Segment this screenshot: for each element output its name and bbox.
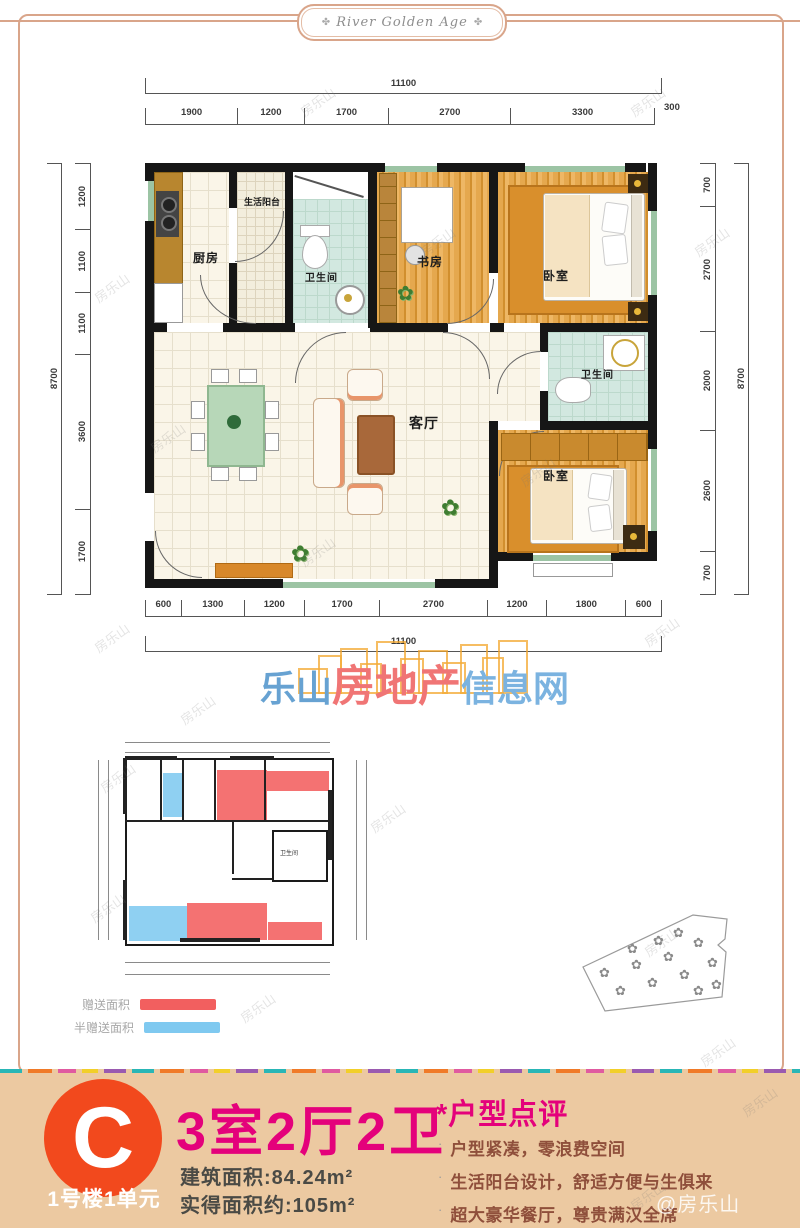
dimension-segment: 1700 bbox=[75, 510, 90, 594]
dimension-value: 2600 bbox=[703, 480, 713, 501]
dimension-value: 1200 bbox=[506, 600, 527, 610]
headboard bbox=[631, 195, 642, 297]
lamp-icon bbox=[634, 180, 641, 187]
plant-icon: ✿ bbox=[441, 495, 459, 521]
decor: ✿ bbox=[711, 978, 722, 993]
tv-cabinet bbox=[215, 563, 293, 578]
chair bbox=[239, 467, 257, 481]
washing-machine bbox=[611, 339, 639, 367]
bullet-icon: · bbox=[438, 1169, 442, 1184]
dimension-value: 600 bbox=[636, 600, 652, 610]
bullet-icon: · bbox=[438, 1202, 442, 1217]
wall bbox=[232, 822, 234, 874]
dim-hairline bbox=[125, 974, 330, 975]
dim-hairline bbox=[125, 752, 330, 753]
decor: 8700 bbox=[736, 368, 747, 389]
dimension-segment: 700 bbox=[700, 164, 715, 207]
ornament-icon: ✤ bbox=[474, 17, 482, 28]
dimension-value: 1900 bbox=[181, 108, 202, 118]
dimension-segment: 1200 bbox=[75, 164, 90, 230]
dimension-segment: 1200 bbox=[238, 108, 304, 124]
wall bbox=[368, 163, 377, 328]
legend-swatch bbox=[144, 1022, 220, 1033]
wall bbox=[223, 323, 295, 332]
site-logo-text: 乐山房地产信息网 bbox=[260, 652, 540, 714]
coffee-table bbox=[357, 415, 395, 475]
chair bbox=[265, 401, 279, 419]
decor bbox=[583, 915, 727, 1011]
wall bbox=[232, 878, 272, 880]
dimension-value: 1100 bbox=[78, 251, 88, 272]
dimension-segment: 1900 bbox=[146, 108, 238, 124]
dim-top-offset: 300 bbox=[664, 102, 680, 113]
legend-swatch bbox=[140, 999, 216, 1010]
wall bbox=[180, 938, 260, 942]
room-label: 卧室 bbox=[543, 267, 569, 284]
dim-hairline bbox=[125, 742, 330, 743]
decor: ✿ bbox=[631, 958, 642, 973]
fridge bbox=[154, 283, 183, 323]
decor: ✿ bbox=[693, 936, 704, 951]
sofa bbox=[313, 398, 345, 488]
dimension-value: 1700 bbox=[331, 600, 352, 610]
centerpiece-icon bbox=[227, 415, 241, 429]
wall bbox=[489, 421, 498, 552]
window bbox=[648, 449, 657, 531]
unit-badge-letter: C bbox=[72, 1095, 134, 1181]
window bbox=[533, 552, 611, 561]
dimension-value: 1800 bbox=[576, 600, 597, 610]
dimension-value: 1200 bbox=[78, 186, 88, 207]
window bbox=[648, 211, 657, 295]
dimension-value: 600 bbox=[155, 600, 171, 610]
site-sketch-svg: ✿✿✿ ✿✿✿ ✿✿✿ ✿✿✿ ✿ bbox=[575, 905, 745, 1025]
dim-top-total: 11100 bbox=[145, 78, 662, 94]
dimension-value: 3300 bbox=[572, 108, 593, 118]
burner-icon bbox=[161, 215, 177, 231]
toilet bbox=[302, 235, 328, 269]
pillow bbox=[587, 473, 612, 502]
chair bbox=[265, 433, 279, 451]
bookshelf bbox=[379, 173, 397, 323]
dimension-segment: 2700 bbox=[700, 207, 715, 332]
wall bbox=[125, 756, 177, 760]
dimension-segment: 1200 bbox=[245, 600, 305, 616]
window bbox=[525, 163, 625, 172]
dimension-segment: 1700 bbox=[305, 600, 381, 616]
dimension-segment: 1100 bbox=[75, 293, 90, 355]
dimension-value: 1100 bbox=[78, 313, 88, 334]
wall bbox=[543, 421, 657, 430]
legend-label: 赠送面积 bbox=[82, 996, 130, 1013]
wall bbox=[125, 820, 330, 822]
decor: ✿ bbox=[707, 956, 718, 971]
chair bbox=[191, 433, 205, 451]
dim-right-total: 8700 bbox=[734, 163, 749, 595]
dimension-value: 1200 bbox=[264, 600, 285, 610]
decor: ✿ bbox=[627, 942, 638, 957]
dimension-segment: 2000 bbox=[700, 332, 715, 430]
decor: ✿ bbox=[679, 968, 690, 983]
pillow bbox=[587, 504, 612, 532]
dimension-value: 2700 bbox=[439, 108, 460, 118]
wall bbox=[214, 760, 216, 820]
actual-area: 实得面积约:105m² bbox=[180, 1189, 355, 1218]
flyer-page: ✤ River Golden Age ✤ 11100 1900120017002… bbox=[0, 0, 800, 1228]
logo-text-mid: 房地产 bbox=[332, 663, 461, 711]
dim-left-segments: 12001100110036001700 bbox=[75, 163, 91, 595]
decor: ✿ bbox=[693, 984, 704, 999]
wall bbox=[489, 561, 498, 588]
washer-drum-icon bbox=[344, 294, 352, 302]
bullet-icon: · bbox=[438, 1136, 442, 1151]
wall bbox=[285, 163, 293, 328]
ornament-icon: ✤ bbox=[322, 17, 330, 28]
building-label: 1号楼1单元 bbox=[28, 1183, 180, 1213]
wall bbox=[229, 163, 237, 208]
decor: ✿ bbox=[663, 950, 674, 965]
wall bbox=[160, 760, 162, 820]
wall bbox=[490, 323, 504, 332]
room-label: 生活阳台 bbox=[239, 195, 285, 208]
dimension-value: 2700 bbox=[703, 259, 713, 280]
bay-window bbox=[533, 563, 613, 577]
dimension-segment: 600 bbox=[146, 600, 182, 616]
dimension-value: 2700 bbox=[423, 600, 444, 610]
armchair bbox=[347, 483, 383, 515]
dimension-value: 1200 bbox=[260, 108, 281, 118]
dim-hairline bbox=[356, 760, 357, 940]
dimension-segment: 2600 bbox=[700, 431, 715, 552]
site-sketch: ✿✿✿ ✿✿✿ ✿✿✿ ✿✿✿ ✿ bbox=[575, 905, 745, 1030]
dimension-segment: 2700 bbox=[380, 600, 487, 616]
plant-icon: ✿ bbox=[397, 281, 414, 306]
dim-hairline bbox=[125, 962, 330, 963]
legend-label: 半赠送面积 bbox=[74, 1019, 134, 1036]
dimension-segment: 700 bbox=[700, 552, 715, 594]
legend-half-gift: 半赠送面积 bbox=[74, 1019, 220, 1036]
wall bbox=[328, 790, 332, 860]
window bbox=[385, 163, 437, 172]
decor: ✿ bbox=[615, 984, 626, 999]
decor: ✿ bbox=[647, 976, 658, 991]
lamp-icon bbox=[630, 533, 637, 540]
dim-hairline bbox=[366, 760, 367, 940]
site-logo: 乐山房地产信息网 bbox=[260, 636, 540, 714]
dim-top-segments: 19001200170027003300 bbox=[145, 108, 655, 125]
wall bbox=[123, 880, 127, 940]
dimension-value: 700 bbox=[703, 565, 713, 581]
wall bbox=[264, 760, 266, 820]
info-band: C 1号楼1单元 3室2厅2卫 建筑面积:84.24m² 实得面积约:105m²… bbox=[0, 1073, 800, 1228]
room-label: 厨房 bbox=[193, 249, 219, 266]
entry-door-leaf bbox=[294, 175, 363, 198]
pillow bbox=[601, 201, 629, 234]
review-point: ·户型紧凑，零浪费空间 bbox=[438, 1135, 778, 1160]
decor: ✿ bbox=[599, 966, 610, 981]
window bbox=[145, 181, 154, 221]
wardrobe bbox=[501, 433, 648, 461]
dim-bottom-segments: 600130012001700270012001800600 bbox=[145, 600, 662, 617]
chair bbox=[211, 467, 229, 481]
burner-icon bbox=[161, 197, 177, 213]
dimension-value: 2000 bbox=[703, 370, 713, 391]
dimension-value: 3600 bbox=[78, 421, 88, 442]
chair bbox=[191, 401, 205, 419]
dimension-value: 1700 bbox=[336, 108, 357, 118]
wall bbox=[145, 323, 167, 332]
credit-watermark: @房乐山 bbox=[656, 1188, 740, 1217]
dimension-segment: 1100 bbox=[75, 230, 90, 292]
chair bbox=[239, 369, 257, 383]
room-label: 客厅 bbox=[409, 413, 439, 433]
brand-ribbon: ✤ River Golden Age ✤ bbox=[297, 4, 507, 41]
legend-gift: 赠送面积 bbox=[82, 996, 216, 1013]
wall bbox=[540, 323, 657, 332]
decor: 8700 bbox=[49, 368, 60, 389]
review-point-text: 户型紧凑，零浪费空间 bbox=[450, 1135, 625, 1160]
review-title: *户型点评 bbox=[436, 1091, 568, 1133]
wall bbox=[370, 323, 448, 332]
decor: 11100 bbox=[391, 78, 416, 89]
room-label: 卫生间 bbox=[581, 366, 614, 381]
unit-badge: C bbox=[44, 1079, 162, 1197]
dimension-value: 700 bbox=[703, 177, 713, 193]
logo-text-left: 乐山 bbox=[260, 668, 332, 709]
brand-name: River Golden Age bbox=[336, 15, 468, 30]
dimension-segment: 3600 bbox=[75, 355, 90, 510]
dimension-segment: 1800 bbox=[547, 600, 626, 616]
layout-title: 3室2厅2卫 bbox=[176, 1087, 446, 1166]
dimension-value: 1700 bbox=[78, 541, 88, 562]
wall bbox=[230, 756, 274, 760]
built-area: 建筑面积:84.24m² bbox=[180, 1161, 353, 1190]
pillow bbox=[601, 234, 628, 266]
wall bbox=[489, 163, 498, 273]
room-label: 卫生间 bbox=[305, 269, 338, 284]
room-label: 卫生间 bbox=[280, 848, 298, 857]
logo-text-right: 信息网 bbox=[461, 668, 569, 709]
dimension-segment: 1200 bbox=[488, 600, 548, 616]
dimension-segment: 600 bbox=[626, 600, 661, 616]
dimension-segment: 2700 bbox=[389, 108, 511, 124]
floor-plan: ✿ bbox=[145, 163, 660, 593]
lamp-icon bbox=[634, 308, 641, 315]
wall bbox=[540, 332, 548, 352]
dimension-segment: 1300 bbox=[182, 600, 245, 616]
dim-left-total: 8700 bbox=[47, 163, 62, 595]
armchair bbox=[347, 369, 383, 401]
dimension-value: 1300 bbox=[202, 600, 223, 610]
wall bbox=[182, 760, 184, 820]
chair bbox=[211, 369, 229, 383]
window bbox=[283, 579, 435, 588]
